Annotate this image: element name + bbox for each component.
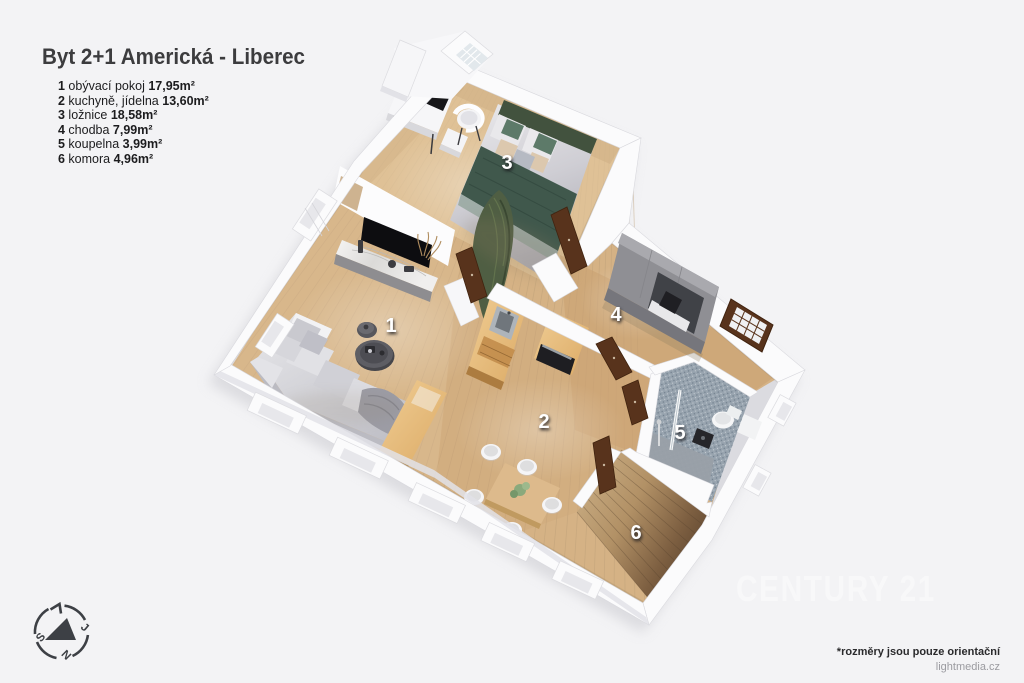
svg-text:*rozměry jsou pouze orientační: *rozměry jsou pouze orientační xyxy=(837,646,1001,658)
svg-text:5 koupelna 3,99m²: 5 koupelna 3,99m² xyxy=(58,137,162,151)
svg-text:2: 2 xyxy=(538,411,549,433)
svg-text:4: 4 xyxy=(610,304,622,326)
svg-text:1: 1 xyxy=(385,315,396,337)
svg-text:2 kuchyně, jídelna 13,60m²: 2 kuchyně, jídelna 13,60m² xyxy=(58,94,209,108)
svg-text:6: 6 xyxy=(630,522,641,544)
svg-text:6 komora 4,96m²: 6 komora 4,96m² xyxy=(58,152,153,166)
svg-text:4 chodba 7,99m²: 4 chodba 7,99m² xyxy=(58,123,153,137)
svg-text:CENTURY 21: CENTURY 21 xyxy=(736,568,936,609)
svg-text:Byt 2+1 Americká - Liberec: Byt 2+1 Americká - Liberec xyxy=(42,44,305,69)
svg-text:1 obývací pokoj 17,95m²: 1 obývací pokoj 17,95m² xyxy=(58,79,195,93)
svg-text:lightmedia.cz: lightmedia.cz xyxy=(936,661,1000,673)
svg-text:5: 5 xyxy=(674,422,685,444)
svg-text:3 ložnice 18,58m²: 3 ložnice 18,58m² xyxy=(58,108,157,122)
svg-text:3: 3 xyxy=(501,152,512,174)
